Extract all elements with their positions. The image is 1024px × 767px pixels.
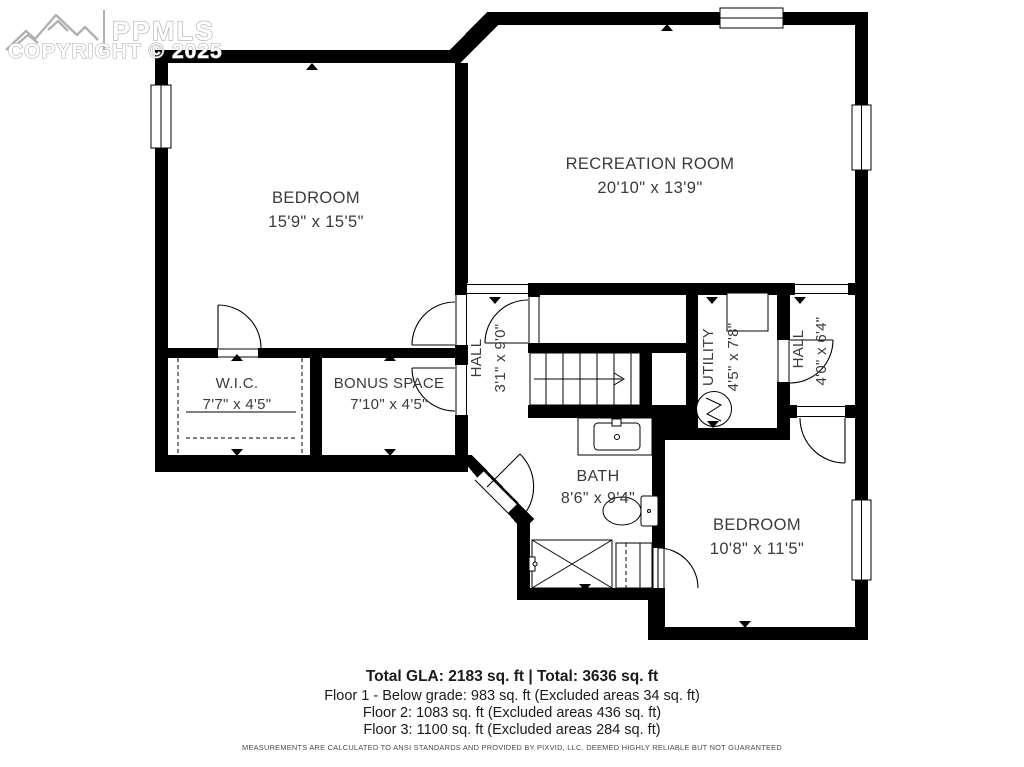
window-top-recreation — [720, 8, 783, 28]
bedroom2-closet-bifold — [616, 543, 652, 588]
label-utility-name: UTILITY — [700, 328, 717, 386]
door-wic — [218, 305, 261, 348]
label-wic-name: W.I.C. — [216, 375, 259, 392]
label-bedroom2-dims: 10'8" x 11'5" — [710, 540, 804, 558]
label-bath-dims: 8'6" x 9'4" — [561, 490, 635, 507]
label-bedroom2-name: BEDROOM — [713, 516, 801, 534]
area-summary: Total GLA: 2183 sq. ft | Total: 3636 sq.… — [242, 668, 782, 752]
bath-vanity-sink — [578, 418, 652, 455]
summary-floor2: Floor 2: 1083 sq. ft (Excluded areas 436… — [363, 705, 661, 721]
opening-closet-door — [528, 297, 540, 343]
summary-floor3: Floor 3: 1100 sq. ft (Excluded areas 284… — [363, 722, 660, 738]
opening-bonus-door — [455, 365, 468, 415]
label-recreation-name: RECREATION ROOM — [566, 155, 735, 173]
floor-plan-page: BEDROOM 15'9" x 15'5" RECREATION ROOM 20… — [0, 0, 1024, 767]
window-left-bedroom — [151, 85, 171, 148]
fixtures — [178, 293, 768, 588]
label-hall2-name: HALL — [790, 330, 807, 369]
sill-hall2-top — [795, 283, 848, 295]
staircase — [530, 353, 640, 405]
sill-hall2-bottom — [797, 405, 845, 418]
label-bonus-name: BONUS SPACE — [334, 375, 445, 392]
label-bonus-dims: 7'10" x 4'5" — [350, 396, 428, 413]
sill-hall1-top — [467, 283, 528, 295]
label-hall1-name: HALL — [468, 339, 485, 378]
summary-total: Total GLA: 2183 sq. ft | Total: 3636 sq.… — [366, 668, 658, 685]
disclaimer-text: MEASUREMENTS ARE CALCULATED TO ANSI STAN… — [242, 743, 782, 752]
watermark-copyright: COPYRIGHT © 2025 — [8, 40, 223, 63]
opening-bedroom1-door — [455, 295, 468, 345]
label-hall1-dims: 3'1" x 9'0" — [492, 324, 509, 393]
shower — [529, 540, 612, 588]
label-hall2-dims: 4'0" x 6'4" — [813, 317, 830, 386]
label-recreation-dims: 20'10" x 13'9" — [597, 179, 702, 197]
label-bedroom1-name: BEDROOM — [272, 189, 360, 207]
label-bath-name: BATH — [576, 468, 619, 485]
door-bedroom2 — [800, 418, 845, 463]
label-wic-dims: 7'7" x 4'5" — [203, 396, 272, 413]
watermark: PPMLS COPYRIGHT © 2025 — [6, 10, 223, 63]
summary-floor1: Floor 1 - Below grade: 983 sq. ft (Exclu… — [324, 688, 700, 704]
floor-plan-canvas: BEDROOM 15'9" x 15'5" RECREATION ROOM 20… — [0, 0, 1024, 767]
label-utility-dims: 4'5" x 7'8" — [725, 323, 742, 392]
opening-utility-door — [777, 340, 790, 382]
label-bedroom1-dims: 15'9" x 15'5" — [268, 213, 364, 231]
door-bedroom1 — [412, 302, 455, 345]
window-right-recreation — [852, 105, 871, 170]
window-right-bedroom2 — [852, 500, 871, 580]
